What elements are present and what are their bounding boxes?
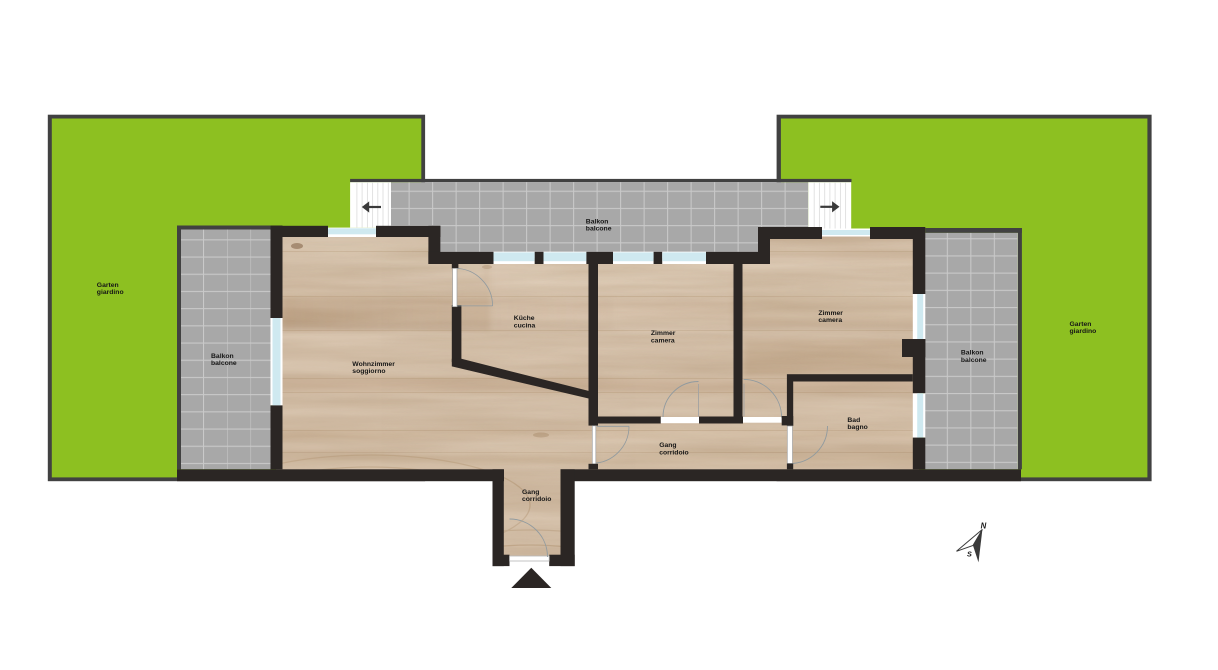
- svg-text:Balkon: Balkon: [211, 353, 234, 360]
- svg-text:balcone: balcone: [211, 360, 237, 367]
- svg-text:Zimmer: Zimmer: [818, 310, 843, 317]
- svg-text:camera: camera: [651, 337, 675, 344]
- svg-text:balcone: balcone: [961, 357, 987, 364]
- svg-text:corridoio: corridoio: [659, 449, 688, 456]
- svg-text:N: N: [981, 521, 987, 530]
- svg-text:soggiorno: soggiorno: [352, 368, 385, 375]
- svg-text:Garten: Garten: [97, 282, 119, 289]
- svg-text:camera: camera: [818, 317, 842, 324]
- svg-text:Zimmer: Zimmer: [651, 330, 676, 337]
- svg-text:Gang: Gang: [659, 442, 676, 449]
- svg-text:balcone: balcone: [586, 226, 612, 233]
- svg-text:corridoio: corridoio: [522, 496, 551, 503]
- svg-text:S: S: [967, 549, 972, 558]
- svg-text:giardino: giardino: [1070, 328, 1097, 335]
- svg-text:Wohnzimmer: Wohnzimmer: [352, 361, 395, 368]
- svg-text:Garten: Garten: [1070, 321, 1092, 328]
- svg-text:Bad: Bad: [847, 417, 860, 424]
- svg-text:Gang: Gang: [522, 489, 539, 496]
- svg-text:Küche: Küche: [514, 315, 535, 322]
- svg-text:giardino: giardino: [97, 289, 124, 296]
- svg-text:bagno: bagno: [847, 424, 867, 431]
- svg-text:cucina: cucina: [514, 322, 536, 329]
- svg-text:Balkon: Balkon: [961, 350, 984, 357]
- svg-text:Balkon: Balkon: [586, 218, 609, 225]
